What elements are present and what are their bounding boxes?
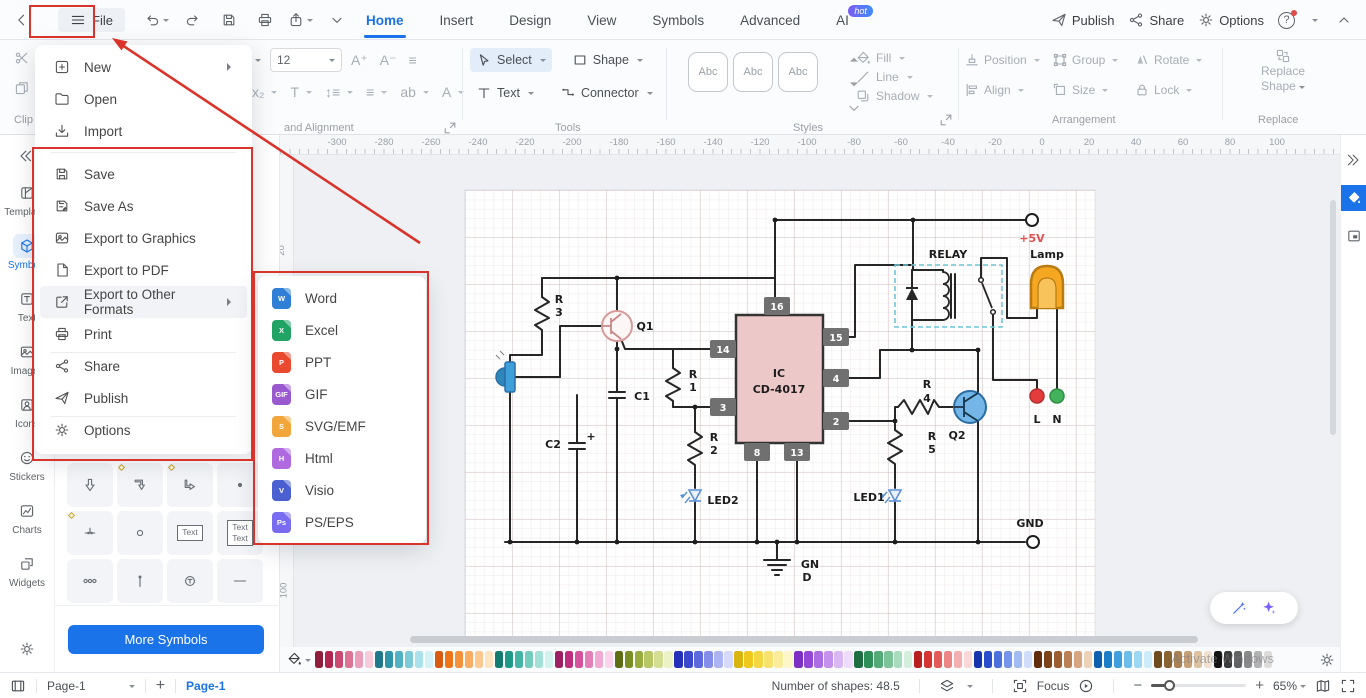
file-menu-item[interactable]: Share bbox=[40, 350, 247, 382]
text-tool-button[interactable]: Text bbox=[470, 81, 540, 105]
style-sample-button[interactable]: Abc bbox=[733, 52, 773, 92]
circuit-label-3: 3 bbox=[555, 306, 563, 319]
circuit-label-L: L bbox=[1033, 413, 1040, 426]
symbol-tile[interactable]: Text bbox=[167, 511, 213, 555]
page-selector[interactable]: Page-1 bbox=[47, 679, 135, 693]
circuit-label-N: N bbox=[1052, 413, 1061, 426]
circuit-label-RELAY: RELAY bbox=[929, 248, 968, 261]
hot-badge: hot bbox=[848, 5, 873, 17]
export-format-item[interactable]: V Visio bbox=[258, 474, 426, 506]
position-icon-icon bbox=[964, 52, 980, 68]
printer-icon bbox=[257, 11, 273, 29]
font-group-label: and Alignment bbox=[284, 122, 354, 134]
sym-junction-icon bbox=[82, 524, 98, 542]
chart-icon bbox=[13, 499, 41, 523]
fill-color-icon[interactable] bbox=[286, 651, 311, 669]
symbol-tile[interactable] bbox=[167, 559, 213, 603]
styles-group-expander[interactable] bbox=[938, 112, 954, 128]
sym-pin-icon bbox=[132, 572, 148, 590]
color-swatch[interactable] bbox=[555, 651, 563, 668]
file-menu-item[interactable]: New bbox=[40, 51, 247, 83]
back-icon[interactable] bbox=[10, 8, 34, 32]
color-swatches bbox=[315, 651, 1275, 668]
printer-icon bbox=[54, 326, 71, 343]
more-symbols-button[interactable]: More Symbols bbox=[68, 625, 264, 654]
svg-text:16: 16 bbox=[770, 302, 784, 313]
fill-drop-icon bbox=[855, 50, 871, 66]
ribbon-tab[interactable]: Insert bbox=[426, 3, 488, 38]
color-palette-strip: Activate Windows bbox=[280, 647, 1340, 672]
color-swatch[interactable] bbox=[1084, 651, 1092, 668]
plane-icon bbox=[1051, 12, 1067, 29]
text-format-button[interactable]: x₂ bbox=[252, 84, 277, 100]
circuit-label-LED1: LED1 bbox=[853, 491, 884, 504]
sym-circle-icon bbox=[132, 524, 148, 542]
quick-action-button[interactable] bbox=[253, 8, 277, 32]
color-swatch[interactable] bbox=[445, 651, 453, 668]
color-swatch[interactable] bbox=[405, 651, 413, 668]
color-swatch[interactable] bbox=[485, 651, 493, 668]
color-swatch[interactable] bbox=[335, 651, 343, 668]
symbol-tiles: Text Text Text bbox=[67, 463, 267, 603]
color-swatch[interactable] bbox=[644, 651, 652, 668]
shadow-icon-icon bbox=[855, 88, 871, 104]
canvas-area[interactable]: -300-280-260-240-220-200-180-160-140-120… bbox=[280, 135, 1340, 672]
text-format-button[interactable]: ↕≡ bbox=[325, 84, 353, 100]
color-swatch[interactable] bbox=[635, 651, 643, 668]
lock-icon-icon bbox=[1134, 82, 1150, 98]
arrangement-button[interactable]: Lock bbox=[1134, 82, 1214, 98]
export-format-item[interactable]: P PPT bbox=[258, 346, 426, 378]
color-swatch[interactable] bbox=[1004, 651, 1012, 668]
color-swatch[interactable] bbox=[365, 651, 373, 668]
color-swatch[interactable] bbox=[625, 651, 633, 668]
page-tab[interactable]: Page-1 bbox=[186, 679, 225, 693]
color-swatch[interactable] bbox=[1054, 651, 1062, 668]
symbol-tile[interactable] bbox=[117, 463, 163, 507]
gear-icon bbox=[1198, 12, 1214, 29]
style-sample-button[interactable]: Abc bbox=[778, 52, 818, 92]
color-swatch[interactable] bbox=[694, 651, 702, 668]
arrangement-button[interactable]: Size bbox=[1052, 82, 1134, 98]
focus-icon[interactable] bbox=[1012, 678, 1028, 694]
circuit-label-Q1: Q1 bbox=[636, 320, 653, 333]
magic-wand-button[interactable] bbox=[1231, 599, 1247, 617]
ribbon-tab[interactable]: AI hot bbox=[822, 3, 863, 38]
color-swatch[interactable] bbox=[395, 651, 403, 668]
pan-map-icon[interactable] bbox=[1315, 678, 1331, 694]
text-format-button[interactable]: ≡ bbox=[366, 84, 387, 100]
style-tool-button[interactable]: Line bbox=[855, 67, 955, 86]
color-swatch[interactable] bbox=[714, 651, 722, 668]
file-menu-item[interactable]: Export to PDF bbox=[40, 254, 247, 286]
ribbon-tab[interactable]: Design bbox=[495, 3, 565, 38]
tools-group-label: Tools bbox=[555, 122, 581, 134]
horizontal-ruler: -300-280-260-240-220-200-180-160-140-120… bbox=[280, 135, 1340, 155]
symbol-handle bbox=[118, 464, 125, 471]
text-format-button[interactable]: ab bbox=[400, 84, 429, 100]
replace-group-label: Replace bbox=[1258, 114, 1298, 126]
color-swatch[interactable] bbox=[505, 651, 513, 668]
layers-icon[interactable] bbox=[939, 678, 955, 694]
symbol-tile[interactable] bbox=[67, 559, 113, 603]
color-swatch[interactable] bbox=[774, 651, 782, 668]
color-swatch[interactable] bbox=[1174, 651, 1182, 668]
symbol-handle bbox=[168, 464, 175, 471]
color-swatch[interactable] bbox=[764, 651, 772, 668]
color-swatch[interactable] bbox=[1064, 651, 1072, 668]
add-page-button[interactable]: + bbox=[156, 677, 165, 695]
shapes-count: Number of shapes: 48.5 bbox=[772, 679, 900, 693]
color-swatch[interactable] bbox=[1154, 651, 1162, 668]
color-swatch[interactable] bbox=[804, 651, 812, 668]
file-menu-item[interactable]: Publish bbox=[40, 382, 247, 414]
shape-tool-button[interactable]: Shape bbox=[566, 48, 649, 72]
color-swatch[interactable] bbox=[994, 651, 1002, 668]
color-swatch[interactable] bbox=[355, 651, 363, 668]
file-menu-item[interactable]: Export to Other Formats bbox=[40, 286, 247, 318]
svg-text:3: 3 bbox=[720, 403, 727, 414]
arrangement-button[interactable]: Group bbox=[1052, 52, 1134, 68]
arrangement-button[interactable]: Align bbox=[964, 82, 1052, 98]
svg-text:13: 13 bbox=[790, 448, 803, 459]
fullscreen-icon[interactable] bbox=[1340, 678, 1356, 694]
sym-dot-icon bbox=[232, 476, 248, 494]
font-name-caret[interactable] bbox=[255, 59, 261, 65]
color-swatch[interactable] bbox=[565, 651, 573, 668]
color-swatch[interactable] bbox=[814, 651, 822, 668]
file-button-label: File bbox=[92, 13, 113, 28]
circuit-label-2: 2 bbox=[710, 444, 718, 457]
clipboard-group-label: Clip bbox=[14, 114, 33, 126]
color-swatch[interactable] bbox=[1124, 651, 1132, 668]
export-format-item[interactable]: W Word bbox=[258, 282, 426, 314]
color-swatch[interactable] bbox=[615, 651, 623, 668]
file-menu-top: New Open Import bbox=[35, 51, 252, 147]
file-menu-item[interactable]: Options bbox=[40, 414, 247, 446]
layers-caret[interactable] bbox=[967, 685, 973, 691]
color-swatch[interactable] bbox=[734, 651, 742, 668]
color-swatch[interactable] bbox=[1094, 651, 1102, 668]
color-swatch[interactable] bbox=[1234, 651, 1242, 668]
quick-action-button[interactable] bbox=[217, 8, 241, 32]
symbol-tile[interactable] bbox=[217, 463, 263, 507]
ribbon-tab[interactable]: Advanced bbox=[726, 3, 814, 38]
zoom-out-button[interactable]: − bbox=[1133, 677, 1142, 694]
page-panel-icon[interactable] bbox=[1341, 223, 1366, 249]
ribbon-tab[interactable]: Symbols bbox=[638, 3, 718, 38]
circuit-label-+: + bbox=[586, 430, 595, 443]
color-swatch[interactable] bbox=[1204, 651, 1212, 668]
titlebar-action-button[interactable]: Options bbox=[1198, 12, 1264, 29]
color-swatch[interactable] bbox=[465, 651, 473, 668]
color-swatch[interactable] bbox=[515, 651, 523, 668]
color-swatch[interactable] bbox=[934, 651, 942, 668]
symbol-tile[interactable]: Text Text bbox=[217, 511, 263, 555]
color-swatch[interactable] bbox=[844, 651, 852, 668]
color-swatch[interactable] bbox=[1254, 651, 1262, 668]
floppy-as-icon bbox=[54, 198, 71, 215]
ai-assistant-button[interactable] bbox=[1261, 599, 1277, 617]
color-swatch[interactable] bbox=[345, 651, 353, 668]
sym-three-circles-icon bbox=[82, 572, 98, 590]
color-swatch[interactable] bbox=[1244, 651, 1252, 668]
color-swatch[interactable] bbox=[744, 651, 752, 668]
style-sample-button[interactable]: Abc bbox=[688, 52, 728, 92]
zoom-in-button[interactable]: + bbox=[1255, 677, 1264, 694]
replace-shape-button[interactable]: Replace Shape bbox=[1228, 48, 1338, 94]
color-swatch[interactable] bbox=[654, 651, 662, 668]
color-swatch[interactable] bbox=[944, 651, 952, 668]
text-format-button[interactable]: T bbox=[290, 84, 312, 100]
file-menu-item[interactable]: Open bbox=[40, 83, 247, 115]
plus-square-icon bbox=[54, 59, 71, 76]
color-swatch[interactable] bbox=[1014, 651, 1022, 668]
quick-action-button[interactable] bbox=[325, 8, 349, 32]
color-swatch[interactable] bbox=[435, 651, 443, 668]
circuit-label-D: D bbox=[802, 571, 811, 584]
color-swatch[interactable] bbox=[964, 651, 972, 668]
widget-icon bbox=[13, 552, 41, 576]
export-icon bbox=[288, 11, 304, 29]
external-icon bbox=[54, 294, 71, 311]
vertical-scrollbar[interactable] bbox=[1330, 200, 1336, 435]
file-menu-item[interactable]: Save As bbox=[40, 190, 247, 222]
export-format-item[interactable]: X Excel bbox=[258, 314, 426, 346]
style-tool-button[interactable]: Fill bbox=[855, 48, 955, 67]
color-swatch[interactable] bbox=[545, 651, 553, 668]
help-caret bbox=[1312, 19, 1318, 25]
color-swatch[interactable] bbox=[585, 651, 593, 668]
color-swatch[interactable] bbox=[495, 651, 503, 668]
circuit-label-R: R bbox=[710, 431, 719, 444]
symbol-tile[interactable] bbox=[67, 511, 113, 555]
color-swatch[interactable] bbox=[854, 651, 862, 668]
circuit-label-+5V: +5V bbox=[1019, 232, 1045, 245]
sidebar-item[interactable]: Widgets bbox=[0, 552, 54, 589]
export-format-item[interactable]: S SVG/EMF bbox=[258, 410, 426, 442]
connector-tool-button[interactable]: Connector bbox=[554, 81, 659, 105]
file-menu-item[interactable]: Export to Graphics bbox=[40, 222, 247, 254]
color-swatch[interactable] bbox=[674, 651, 682, 668]
titlebar-action-button[interactable]: Share bbox=[1128, 12, 1184, 29]
ribbon-tabs: Home Insert Design View Symbols bbox=[352, 0, 863, 40]
share-nodes-icon bbox=[54, 358, 71, 375]
right-rail bbox=[1340, 135, 1366, 672]
help-button[interactable]: ? bbox=[1278, 12, 1295, 29]
symbol-tile[interactable] bbox=[117, 511, 163, 555]
color-swatch[interactable] bbox=[974, 651, 982, 668]
horizontal-scrollbar[interactable] bbox=[410, 636, 1198, 643]
image-icon bbox=[54, 230, 71, 247]
focus-label: Focus bbox=[1037, 679, 1070, 693]
titlebar-action-button[interactable]: Publish bbox=[1051, 12, 1115, 29]
file-menu-item[interactable]: Save bbox=[40, 158, 247, 190]
symbol-tile[interactable] bbox=[67, 463, 113, 507]
quick-action-button[interactable] bbox=[145, 8, 169, 32]
group-icon-icon bbox=[1052, 52, 1068, 68]
color-swatch[interactable] bbox=[904, 651, 912, 668]
palette-settings-icon[interactable] bbox=[1319, 651, 1335, 669]
color-swatch[interactable] bbox=[415, 651, 423, 668]
status-bar: Page-1 + Page-1 Number of shapes: 48.5 F… bbox=[0, 672, 1366, 698]
file-menu: New Open Import Save bbox=[35, 45, 252, 454]
color-swatch[interactable] bbox=[1034, 651, 1042, 668]
circuit-diagram[interactable]: 161542143813ICCD-4017+5VRELAYLampR3Q1C1R… bbox=[280, 155, 1340, 647]
color-swatch[interactable] bbox=[1144, 651, 1152, 668]
color-swatch[interactable] bbox=[535, 651, 543, 668]
svg-text:8: 8 bbox=[754, 448, 761, 459]
file-type-icon: P bbox=[272, 352, 291, 373]
text-format-button[interactable]: A bbox=[442, 84, 464, 100]
color-swatch[interactable] bbox=[884, 651, 892, 668]
collapse-right-panel-icon[interactable] bbox=[1341, 147, 1366, 173]
color-swatch[interactable] bbox=[784, 651, 792, 668]
export-format-item[interactable]: GIF GIF bbox=[258, 378, 426, 410]
dropdown-caret bbox=[163, 19, 169, 25]
circuit-label-GND: GND bbox=[1016, 517, 1043, 530]
color-swatch[interactable] bbox=[425, 651, 433, 668]
circuit-label-R: R bbox=[689, 368, 698, 381]
export-format-item[interactable]: H Html bbox=[258, 442, 426, 474]
select-tool-button[interactable]: Select bbox=[470, 48, 552, 72]
color-swatch[interactable] bbox=[704, 651, 712, 668]
font-format-button[interactable]: ≡ bbox=[408, 52, 416, 69]
folder-icon bbox=[54, 91, 71, 108]
color-swatch[interactable] bbox=[475, 651, 483, 668]
color-swatch[interactable] bbox=[455, 651, 463, 668]
zoom-slider-knob[interactable] bbox=[1164, 680, 1175, 691]
ribbon-tab[interactable]: Home bbox=[352, 3, 418, 38]
page-overview-icon[interactable] bbox=[10, 678, 26, 694]
fill-panel-icon[interactable] bbox=[1341, 185, 1366, 211]
file-type-icon: H bbox=[272, 448, 291, 469]
color-swatch[interactable] bbox=[325, 651, 333, 668]
color-swatch[interactable] bbox=[824, 651, 832, 668]
color-swatch[interactable] bbox=[834, 651, 842, 668]
symbol-tile[interactable] bbox=[217, 559, 263, 603]
circuit-label-Lamp: Lamp bbox=[1030, 248, 1064, 261]
style-samples: AbcAbcAbc bbox=[688, 52, 846, 92]
font-group-expander[interactable] bbox=[442, 120, 458, 136]
font-format-button[interactable]: A⁺ bbox=[351, 52, 368, 69]
color-swatch[interactable] bbox=[1114, 651, 1122, 668]
style-tool-button[interactable]: Shadow bbox=[855, 86, 955, 105]
file-menu-main: Save Save As Export to Graphics Export t… bbox=[35, 158, 252, 446]
font-size-select[interactable]: 12 bbox=[270, 48, 342, 72]
color-swatch[interactable] bbox=[684, 651, 692, 668]
sym-corner-right-icon bbox=[182, 476, 198, 494]
file-type-icon: Ps bbox=[272, 512, 291, 533]
color-swatch[interactable] bbox=[864, 651, 872, 668]
color-swatch[interactable] bbox=[1224, 651, 1232, 668]
quick-action-button[interactable] bbox=[181, 8, 205, 32]
file-menu-button[interactable]: File bbox=[58, 8, 125, 33]
symbol-tile[interactable] bbox=[117, 559, 163, 603]
color-swatch[interactable] bbox=[575, 651, 583, 668]
color-swatch[interactable] bbox=[385, 651, 393, 668]
color-swatch[interactable] bbox=[914, 651, 922, 668]
color-swatch[interactable] bbox=[894, 651, 902, 668]
color-swatch[interactable] bbox=[1184, 651, 1192, 668]
circuit-label-Q2: Q2 bbox=[948, 429, 965, 442]
sidebar-item[interactable]: Charts bbox=[0, 499, 54, 536]
arrangement-button[interactable]: Position bbox=[964, 52, 1052, 68]
sidebar-settings-icon[interactable] bbox=[19, 640, 35, 658]
color-swatch[interactable] bbox=[1194, 651, 1202, 668]
arrangement-button[interactable]: Rotate bbox=[1134, 52, 1214, 68]
color-swatch[interactable] bbox=[1134, 651, 1142, 668]
color-swatch[interactable] bbox=[924, 651, 932, 668]
color-swatch[interactable] bbox=[375, 651, 383, 668]
zoom-slider[interactable] bbox=[1151, 684, 1246, 687]
rotate-icon-icon bbox=[1134, 52, 1150, 68]
fill-line-shadow-group: Fill Line Shadow bbox=[855, 48, 955, 105]
color-swatch[interactable] bbox=[984, 651, 992, 668]
export-format-item[interactable]: Ps PS/EPS bbox=[258, 506, 426, 538]
file-menu-item[interactable]: Import bbox=[40, 115, 247, 147]
font-format-button[interactable]: A⁻ bbox=[380, 52, 397, 69]
collapse-sidebar-icon[interactable] bbox=[17, 147, 37, 165]
svg-text:2: 2 bbox=[833, 417, 840, 428]
color-swatch[interactable] bbox=[1044, 651, 1052, 668]
hamburger-icon bbox=[70, 12, 86, 29]
font-row2: x₂T↕≡≡abA bbox=[252, 84, 458, 100]
color-swatch[interactable] bbox=[1214, 651, 1222, 668]
color-swatch[interactable] bbox=[595, 651, 603, 668]
presentation-play-button[interactable] bbox=[1078, 678, 1094, 694]
ribbon-tab[interactable]: View bbox=[573, 3, 630, 38]
quick-actions bbox=[145, 8, 349, 32]
color-swatch[interactable] bbox=[1024, 651, 1032, 668]
circuit-label-R: R bbox=[928, 430, 937, 443]
color-swatch[interactable] bbox=[724, 651, 732, 668]
color-swatch[interactable] bbox=[954, 651, 962, 668]
dropdown-caret bbox=[307, 19, 313, 25]
size-icon-icon bbox=[1052, 82, 1068, 98]
submenu-arrow-icon bbox=[227, 298, 235, 306]
color-swatch[interactable] bbox=[1164, 651, 1172, 668]
circuit-label-R: R bbox=[555, 293, 564, 306]
zoom-level[interactable]: 65% bbox=[1273, 679, 1306, 693]
file-type-icon: V bbox=[272, 480, 291, 501]
svg-text:CD-4017: CD-4017 bbox=[753, 383, 806, 396]
import-icon bbox=[54, 123, 71, 140]
file-menu-item[interactable]: Print bbox=[40, 318, 247, 350]
color-swatch[interactable] bbox=[1074, 651, 1082, 668]
circuit-label-5: 5 bbox=[928, 443, 936, 456]
color-swatch[interactable] bbox=[525, 651, 533, 668]
export-submenu: W Word X Excel P PPT GIF GIF S SVG/EMF H… bbox=[258, 276, 426, 544]
color-swatch[interactable] bbox=[794, 651, 802, 668]
sym-line-icon bbox=[232, 572, 248, 590]
quick-action-button[interactable] bbox=[289, 8, 313, 32]
color-swatch[interactable] bbox=[1104, 651, 1112, 668]
symbol-tile[interactable] bbox=[167, 463, 213, 507]
color-swatch[interactable] bbox=[874, 651, 882, 668]
align-icon-icon bbox=[964, 82, 980, 98]
color-swatch[interactable] bbox=[1264, 651, 1272, 668]
collapse-ribbon-icon[interactable] bbox=[1332, 8, 1356, 32]
color-swatch[interactable] bbox=[664, 651, 672, 668]
share-nodes-icon bbox=[1128, 12, 1144, 29]
ic-label: IC bbox=[773, 367, 785, 380]
submenu-arrow-icon bbox=[227, 63, 235, 71]
color-swatch[interactable] bbox=[754, 651, 762, 668]
color-swatch[interactable] bbox=[605, 651, 613, 668]
svg-text:4: 4 bbox=[833, 374, 840, 385]
color-swatch[interactable] bbox=[315, 651, 323, 668]
